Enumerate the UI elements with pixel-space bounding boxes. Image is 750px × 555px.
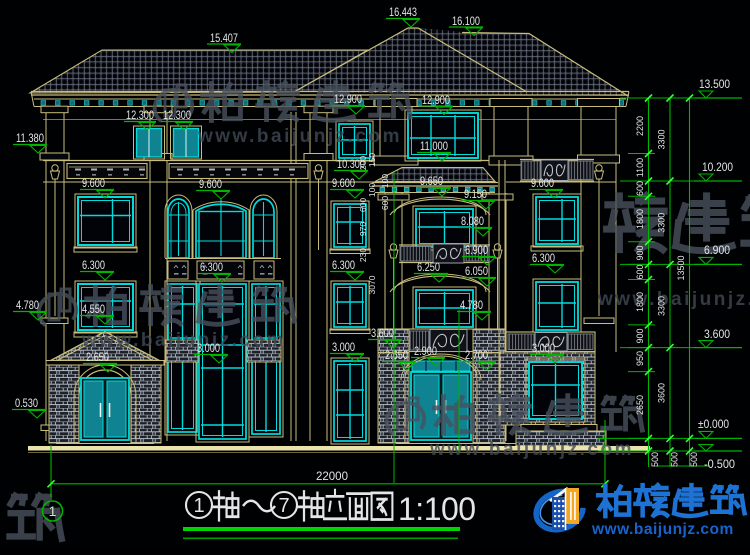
svg-text:600: 600 [635, 264, 645, 279]
svg-text:15.407: 15.407 [210, 33, 238, 45]
svg-text:4.780: 4.780 [460, 300, 483, 312]
svg-text:1100: 1100 [635, 158, 645, 177]
svg-text:500: 500 [650, 452, 660, 467]
svg-text:6.900: 6.900 [704, 245, 730, 257]
svg-text:9.600: 9.600 [531, 178, 554, 190]
svg-text:9.600: 9.600 [82, 178, 105, 190]
svg-text:7: 7 [278, 495, 289, 517]
svg-text:600: 600 [380, 196, 390, 210]
svg-text:1: 1 [193, 495, 204, 517]
svg-text:4.550: 4.550 [82, 304, 105, 316]
svg-text:1800: 1800 [635, 292, 645, 312]
svg-text:0.530: 0.530 [15, 398, 38, 410]
svg-text:www.baijunjz.c: www.baijunjz.c [597, 289, 750, 310]
svg-text:9.650: 9.650 [420, 176, 443, 188]
svg-text:2.900: 2.900 [414, 346, 437, 358]
svg-text:12.300: 12.300 [126, 110, 154, 122]
svg-text:3.600: 3.600 [704, 329, 730, 341]
svg-text:3070: 3070 [367, 275, 377, 294]
svg-text:600: 600 [358, 198, 368, 212]
svg-text:3300: 3300 [657, 129, 667, 149]
svg-text:12.300: 12.300 [163, 110, 191, 122]
svg-text:100: 100 [367, 183, 377, 197]
svg-text:3.000: 3.000 [332, 342, 355, 354]
svg-text:2650: 2650 [635, 395, 645, 415]
svg-text:2200: 2200 [635, 116, 645, 136]
svg-text:3.600: 3.600 [371, 328, 394, 340]
svg-text:6.300: 6.300 [200, 262, 223, 274]
svg-text:12.900: 12.900 [422, 95, 450, 107]
svg-text:12.900: 12.900 [334, 94, 362, 106]
svg-text:6.300: 6.300 [332, 260, 355, 272]
svg-text:4.780: 4.780 [16, 300, 39, 312]
svg-text:6.250: 6.250 [417, 262, 440, 274]
svg-text:9.150: 9.150 [464, 189, 487, 201]
svg-text:±0.000: ±0.000 [698, 419, 729, 431]
svg-text:6.300: 6.300 [532, 253, 555, 265]
svg-text:3.000: 3.000 [197, 343, 220, 355]
svg-text:3600: 3600 [657, 383, 667, 403]
svg-text:9.600: 9.600 [199, 179, 222, 191]
svg-text:11.000: 11.000 [420, 141, 448, 153]
svg-text:900: 900 [635, 245, 645, 260]
svg-text:900: 900 [635, 328, 645, 343]
svg-text:9.600: 9.600 [332, 178, 355, 190]
svg-text:100: 100 [380, 174, 390, 188]
svg-text:2.650: 2.650 [385, 350, 408, 362]
svg-text:16.443: 16.443 [389, 7, 417, 19]
svg-text:2.650: 2.650 [86, 352, 109, 364]
svg-text:1: 1 [49, 503, 57, 519]
svg-text:6.300: 6.300 [82, 260, 105, 272]
svg-text:13.500: 13.500 [699, 79, 730, 91]
svg-text:11.380: 11.380 [16, 133, 44, 145]
svg-text:8.080: 8.080 [461, 216, 484, 228]
svg-text:150: 150 [367, 153, 377, 167]
svg-text:3.000: 3.000 [532, 343, 555, 355]
svg-text:500: 500 [689, 452, 699, 467]
svg-text:3300: 3300 [657, 213, 667, 233]
svg-text:-0.500: -0.500 [704, 459, 735, 471]
svg-text:950: 950 [635, 351, 645, 366]
svg-text:500: 500 [670, 452, 680, 467]
svg-text:6.050: 6.050 [465, 266, 488, 278]
svg-text:www.baijunjz.com: www.baijunjz.com [591, 521, 734, 538]
svg-text:230: 230 [358, 248, 368, 262]
svg-text:6.900: 6.900 [465, 245, 488, 257]
svg-text:16.100: 16.100 [452, 16, 480, 28]
svg-text:1800: 1800 [635, 209, 645, 229]
svg-text:10.200: 10.200 [702, 162, 733, 174]
svg-text:1:100: 1:100 [398, 491, 476, 527]
svg-text:600: 600 [635, 181, 645, 196]
svg-text:13500: 13500 [676, 255, 686, 280]
svg-text:970: 970 [358, 222, 368, 236]
svg-text:22000: 22000 [316, 471, 348, 483]
svg-text:2.700: 2.700 [465, 350, 488, 362]
svg-text:3300: 3300 [657, 296, 667, 316]
